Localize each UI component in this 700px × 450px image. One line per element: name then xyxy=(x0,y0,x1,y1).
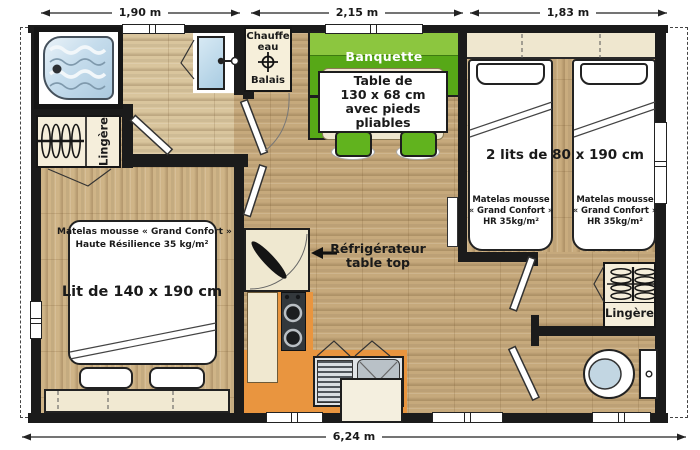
linen-left-text: Lingère xyxy=(97,117,111,166)
kids-pillow-left xyxy=(476,63,545,85)
wall-linen-hall xyxy=(122,104,133,168)
window-divider xyxy=(464,413,471,422)
window-divider xyxy=(31,318,41,324)
floorplan-canvas: Lingère Chauffe eau Balais Banquette Tab… xyxy=(0,0,700,450)
linen-right-label: Lingère xyxy=(603,307,656,320)
master-bed-label: Lit de 140 x 190 cm xyxy=(57,284,227,301)
linen-left-label: Lingère xyxy=(98,116,111,168)
utility-line2: eau xyxy=(244,42,292,54)
kids-mattress-left-3: HR 35kg/m² xyxy=(463,218,559,228)
stool-1 xyxy=(335,131,372,157)
kids-mattress-right-3: HR 35kg/m² xyxy=(567,218,663,228)
window-left-master xyxy=(30,301,42,339)
toilet-tank xyxy=(639,349,658,399)
fridge-counter xyxy=(244,228,310,292)
kids-mattress-left-1: Matelas mousse xyxy=(463,196,559,206)
utility-line3: Balais xyxy=(244,75,292,87)
dim-top-1: 1,90 m xyxy=(112,6,168,19)
window-bottom-living xyxy=(432,412,503,423)
wall-kitchen xyxy=(234,154,244,413)
window-divider xyxy=(291,413,298,422)
shower-tray xyxy=(43,36,114,100)
stool-2 xyxy=(400,131,437,157)
master-pillow-2 xyxy=(149,367,205,389)
kids-mattress-right-1: Matelas mousse xyxy=(567,196,663,206)
window-top-dining xyxy=(325,24,423,34)
kids-shelf xyxy=(467,33,655,59)
master-pillow-1 xyxy=(79,367,133,389)
kids-beds-label: 2 lits de 80 x 190 cm xyxy=(470,148,660,164)
wall-master-top xyxy=(133,154,248,167)
window-divider xyxy=(149,25,156,33)
bench-label: Banquette xyxy=(308,50,460,64)
master-headboard-shelf xyxy=(44,389,230,413)
kitchen-counter xyxy=(247,292,278,383)
worktop-flap xyxy=(340,378,403,423)
wall-kids-bottom xyxy=(458,252,538,262)
dim-bottom: 6,24 m xyxy=(326,430,382,443)
wall-wc-cap xyxy=(531,315,539,346)
stove xyxy=(281,292,306,351)
master-mattress-line1: Matelas mousse « Grand Confort » xyxy=(57,227,227,237)
window-top-bathroom xyxy=(122,24,185,34)
window-bottom-wc xyxy=(592,412,651,423)
dim-top-3: 1,83 m xyxy=(540,6,596,19)
linen-right-divider xyxy=(605,302,654,303)
door-leaf-kids-bedroom xyxy=(447,197,458,247)
table-line4: pliables xyxy=(318,116,448,130)
window-divider xyxy=(618,413,625,422)
kids-pillow-right xyxy=(580,63,648,85)
wall-kids-bottom-hinge xyxy=(530,252,538,266)
dim-top-2: 2,15 m xyxy=(329,6,385,19)
utility-line1: Chauffe xyxy=(244,31,292,43)
window-bottom-kitchen xyxy=(266,412,323,423)
window-divider xyxy=(370,25,377,33)
kids-mattress-right-2: « Grand Confort » xyxy=(567,207,663,217)
washbasin xyxy=(197,36,225,90)
kids-mattress-left-2: « Grand Confort » xyxy=(463,207,559,217)
fridge-label-line2: table top xyxy=(330,256,426,270)
master-mattress-line2: Haute Résilience 35 kg/m² xyxy=(57,240,227,250)
